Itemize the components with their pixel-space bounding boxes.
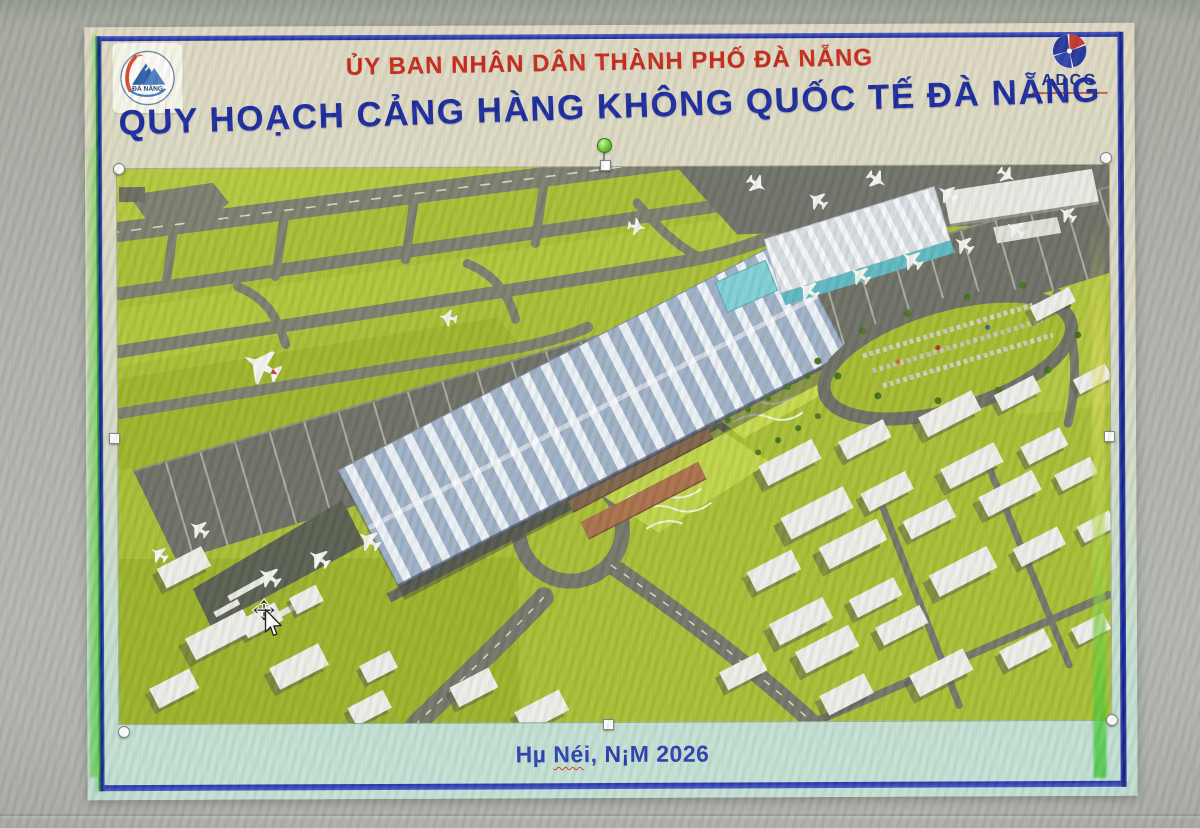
resize-handle-bottom-right[interactable]	[1106, 714, 1118, 726]
footer-part1: Hµ	[516, 741, 554, 767]
resize-handle-bottom-left[interactable]	[118, 726, 130, 738]
chromatic-fringe-right	[1091, 223, 1106, 778]
footer-part3: i, N¡M 2026	[584, 741, 710, 768]
resize-handle-top-center[interactable]	[600, 160, 611, 171]
slide-frame-right	[1117, 32, 1126, 787]
slide-canvas[interactable]: ĐÀ NẴNG ADCC ỦY BAN NHÂN DÂN THÀNH PHỐ Đ…	[84, 23, 1137, 801]
photographed-screen: ĐÀ NẴNG ADCC ỦY BAN NHÂN DÂN THÀNH PHỐ Đ…	[0, 0, 1200, 828]
resize-handle-top-left[interactable]	[113, 163, 125, 175]
move-cursor-icon	[248, 598, 292, 649]
footer-place-year[interactable]: Hµ Néi, N¡M 2026	[87, 739, 1137, 771]
slide-frame-top	[95, 32, 1123, 41]
resize-handle-top-right[interactable]	[1100, 152, 1112, 164]
rotation-handle[interactable]	[597, 138, 612, 153]
screen-bezel-line	[0, 814, 1200, 816]
resize-handle-bottom-center[interactable]	[603, 719, 614, 730]
slide-frame-bottom	[99, 781, 1127, 791]
footer-misspelled-word: Né	[553, 741, 584, 767]
resize-handle-middle-right[interactable]	[1104, 431, 1115, 442]
resize-handle-middle-left[interactable]	[109, 433, 120, 444]
